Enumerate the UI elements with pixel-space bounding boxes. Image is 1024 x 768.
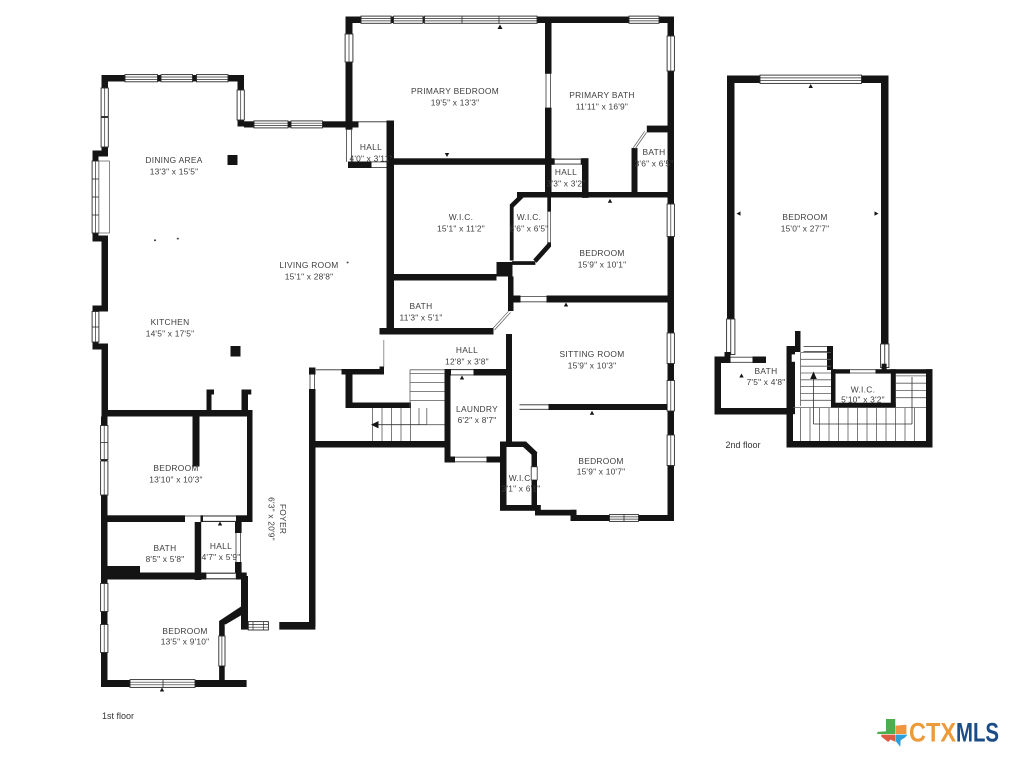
svg-text:W.I.C.: W.I.C. <box>509 473 534 483</box>
svg-text:PRIMARY BATH: PRIMARY BATH <box>569 90 635 100</box>
svg-text:4'7" x 5'9": 4'7" x 5'9" <box>202 552 241 562</box>
svg-text:13'5" x 9'10": 13'5" x 9'10" <box>161 637 210 647</box>
svg-text:8'6" x 6'5": 8'6" x 6'5" <box>510 224 549 234</box>
svg-text:6'2" x 8'7": 6'2" x 8'7" <box>458 415 497 425</box>
svg-text:FOYER: FOYER <box>278 504 288 534</box>
svg-text:LAUNDRY: LAUNDRY <box>456 404 498 414</box>
svg-text:3'3" x 3'2": 3'3" x 3'2" <box>547 179 586 189</box>
svg-text:13'10" x 10'3": 13'10" x 10'3" <box>149 475 202 485</box>
svg-text:11'11" x 16'9": 11'11" x 16'9" <box>576 102 628 112</box>
svg-text:BATH: BATH <box>410 301 433 311</box>
svg-text:BATH: BATH <box>154 543 177 553</box>
svg-text:KITCHEN: KITCHEN <box>151 317 190 327</box>
svg-text:LIVING ROOM: LIVING ROOM <box>279 260 338 270</box>
svg-text:15'9" x 10'7": 15'9" x 10'7" <box>577 467 626 477</box>
svg-text:DINING AREA: DINING AREA <box>145 155 202 165</box>
svg-text:3'6" x 6'5": 3'6" x 6'5" <box>635 159 674 169</box>
svg-text:BEDROOM: BEDROOM <box>578 456 623 466</box>
svg-text:15'0" x 27'7": 15'0" x 27'7" <box>781 224 830 234</box>
svg-text:BEDROOM: BEDROOM <box>782 212 827 222</box>
svg-text:W.I.C.: W.I.C. <box>851 385 876 395</box>
svg-text:12'8" x 3'8": 12'8" x 3'8" <box>445 357 489 367</box>
svg-text:HALL: HALL <box>210 541 232 551</box>
svg-text:BEDROOM: BEDROOM <box>162 626 207 636</box>
svg-text:13'3" x 15'5": 13'3" x 15'5" <box>150 167 199 177</box>
svg-text:HALL: HALL <box>555 167 577 177</box>
svg-text:4'0" x 3'11": 4'0" x 3'11" <box>349 154 392 164</box>
svg-text:5'10" x 3'2": 5'10" x 3'2" <box>841 395 885 405</box>
svg-text:W.I.C.: W.I.C. <box>449 212 474 222</box>
svg-text:6'3" x 20'9": 6'3" x 20'9" <box>267 497 277 541</box>
svg-text:BEDROOM: BEDROOM <box>153 463 198 473</box>
svg-text:BEDROOM: BEDROOM <box>579 248 624 258</box>
svg-text:15'9" x 10'3": 15'9" x 10'3" <box>568 361 617 371</box>
svg-text:W.I.C.: W.I.C. <box>517 212 542 222</box>
svg-text:SITTING ROOM: SITTING ROOM <box>559 349 624 359</box>
svg-text:15'1" x 11'2": 15'1" x 11'2" <box>437 224 485 234</box>
svg-text:BATH: BATH <box>643 147 666 157</box>
svg-text:BATH: BATH <box>755 366 778 376</box>
svg-text:8'5" x 5'8": 8'5" x 5'8" <box>146 554 185 564</box>
svg-text:7'5" x 4'8": 7'5" x 4'8" <box>747 377 786 387</box>
svg-text:3'1" x 6'1": 3'1" x 6'1" <box>502 484 541 494</box>
svg-text:MLS: MLS <box>956 718 999 748</box>
svg-text:HALL: HALL <box>360 142 382 152</box>
svg-text:PRIMARY BEDROOM: PRIMARY BEDROOM <box>411 86 499 96</box>
svg-text:19'5" x 13'3": 19'5" x 13'3" <box>431 98 480 108</box>
svg-text:CTX: CTX <box>909 718 956 748</box>
svg-text:HALL: HALL <box>456 345 478 355</box>
svg-text:1st floor: 1st floor <box>102 711 134 721</box>
svg-text:2nd floor: 2nd floor <box>725 440 760 450</box>
svg-text:14'5" x 17'5": 14'5" x 17'5" <box>146 329 195 339</box>
svg-text:11'3" x 5'1": 11'3" x 5'1" <box>399 313 442 323</box>
svg-text:15'1" x 28'8": 15'1" x 28'8" <box>285 272 334 282</box>
svg-text:15'9" x 10'1": 15'9" x 10'1" <box>578 260 627 270</box>
